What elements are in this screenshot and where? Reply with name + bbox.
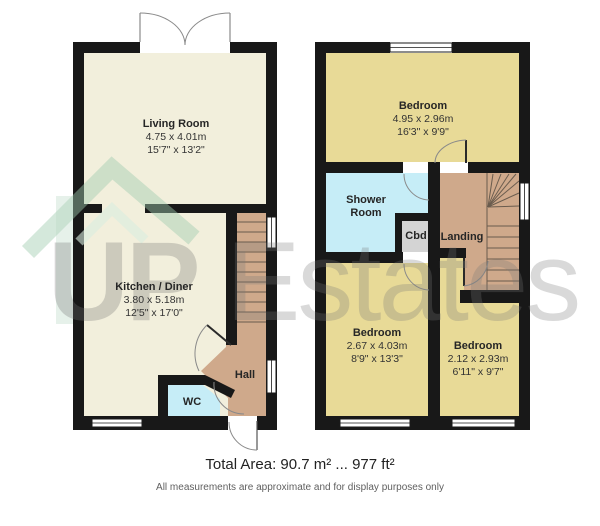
window [390, 43, 452, 52]
landing-bottom-wall [438, 248, 466, 258]
ff-wall-left [315, 42, 326, 430]
ff-wall-right [519, 42, 530, 430]
wc-wall-left [158, 375, 168, 416]
divider-wall-left [84, 204, 102, 213]
disclaimer-text: All measurements are approximate and for… [0, 482, 600, 493]
ff-wall-top-right [452, 42, 530, 53]
gf-wall-bottom-right [257, 416, 277, 430]
window [92, 419, 142, 427]
landing-passage-area [464, 248, 487, 290]
window [267, 360, 276, 393]
window [452, 419, 515, 427]
window [520, 183, 529, 220]
bedroom2-area [326, 263, 429, 416]
ff-midwall-right [468, 162, 519, 173]
stairs-bottom-wall [460, 290, 519, 303]
total-area-text: Total Area: 90.7 m² ... 977 ft² [0, 456, 600, 473]
bedroom1-area [326, 53, 519, 162]
window [267, 217, 276, 248]
ff-center-wall [428, 162, 440, 416]
landing-area [440, 173, 487, 248]
floorplan-canvas: UP Estates Living Room 4.75 x 4.01m 15'7… [0, 0, 600, 526]
french-doors-arc [140, 13, 230, 45]
window [340, 419, 410, 427]
floorplan-drawing [0, 0, 600, 526]
stairs-first-area [487, 173, 519, 290]
cupboard-wall-left [395, 213, 402, 252]
first-floor-plan [315, 42, 530, 430]
front-door-arc [229, 421, 257, 450]
cupboard-area [402, 221, 429, 252]
stairs-ground-area [237, 213, 266, 345]
shower-bottom-wall [326, 252, 403, 263]
stair-side-wall [226, 213, 237, 345]
ff-midwall-left [326, 162, 403, 173]
ff-wall-top-left [315, 42, 390, 53]
